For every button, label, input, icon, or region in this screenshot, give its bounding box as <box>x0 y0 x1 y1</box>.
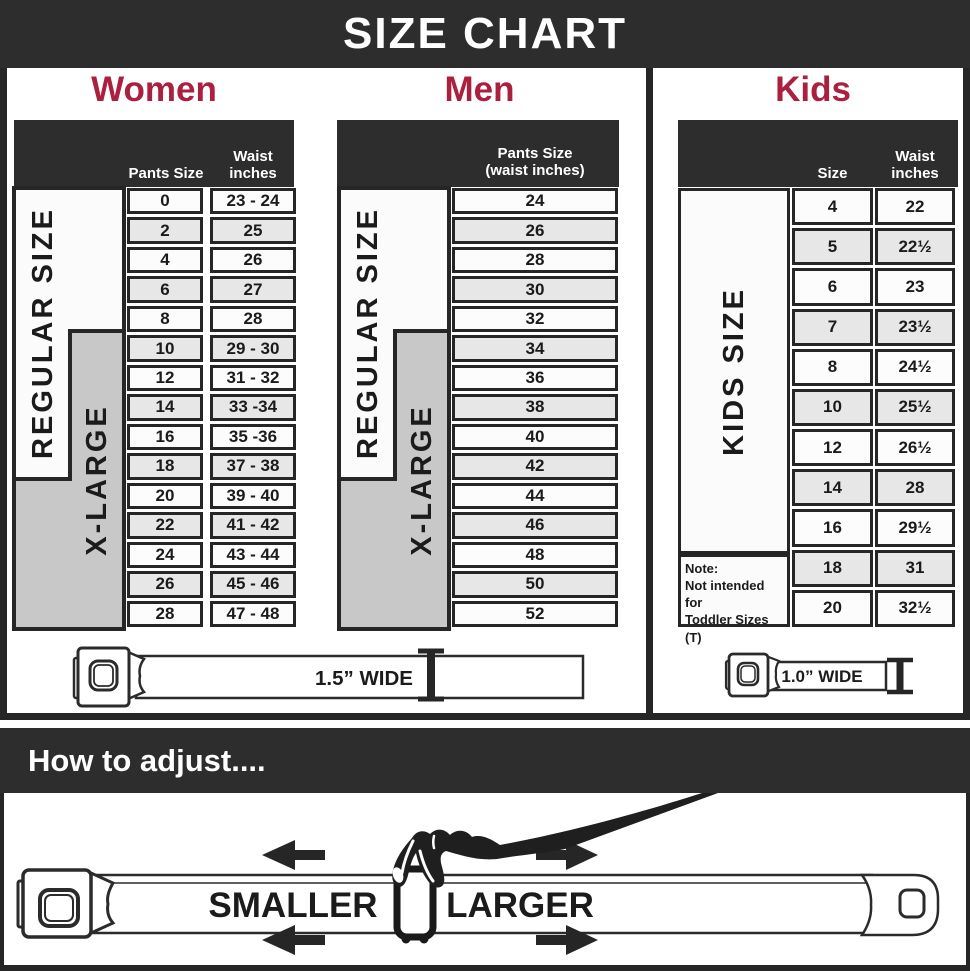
larger-label: LARGER <box>446 886 594 925</box>
how-to-adjust-heading: How to adjust.... <box>0 743 266 779</box>
pants-size-cell: 30 <box>452 276 618 302</box>
pants-size-cell: 50 <box>452 571 618 597</box>
waist-inches-cell: 26 <box>210 247 296 273</box>
kids-note: Note: Not intended for Toddler Sizes (T) <box>678 554 790 627</box>
note-line2: Not intended for <box>685 577 783 611</box>
table-row: 18 31 <box>792 550 955 587</box>
men-size-table: 242628303234363840424446485052 <box>452 188 618 627</box>
pants-size-cell: 48 <box>452 542 618 568</box>
pants-size-cell: 10 <box>127 335 203 361</box>
women-table-header: Pants Size Waist inches <box>14 120 294 187</box>
waist-header-line1: Waist <box>210 148 296 165</box>
kids-section-title: Kids <box>663 70 963 112</box>
table-row: 18 37 - 38 <box>127 453 296 479</box>
pants-size-cell: 28 <box>452 247 618 273</box>
size-chart-page: SIZE CHART Women Men Kids Pants Size Wai… <box>0 0 970 971</box>
belt-tip-graphic <box>862 875 938 935</box>
waist-inches-cell: 35 -36 <box>210 424 296 450</box>
kids-size-cell: 8 <box>792 349 873 386</box>
pants-size-cell: 40 <box>452 424 618 450</box>
table-row: 7 23½ <box>792 309 955 346</box>
table-row: 12 31 - 32 <box>127 365 296 391</box>
pants-size-cell: 28 <box>127 601 203 627</box>
men-table-header: Pants Size (waist inches) <box>337 120 619 187</box>
kids-table-header: Size Waist inches <box>678 120 958 187</box>
kids-belt-graphic: 1.0” WIDE <box>700 646 940 706</box>
waist-inches-cell: 28 <box>875 469 955 506</box>
pants-size-cell: 24 <box>452 188 618 214</box>
kids-size-cell: 14 <box>792 469 873 506</box>
table-row: 10 29 - 30 <box>127 335 296 361</box>
waist-inches-cell: 29 - 30 <box>210 335 296 361</box>
seatbelt-buckle-icon <box>726 654 779 696</box>
table-row: 16 29½ <box>792 509 955 546</box>
note-line3: Toddler Sizes (T) <box>685 611 783 645</box>
waist-inches-cell: 43 - 44 <box>210 542 296 568</box>
pants-size-cell: 44 <box>452 483 618 509</box>
pants-size-cell: 8 <box>127 306 203 332</box>
waist-inches-cell: 22 <box>875 188 955 225</box>
table-row: 0 23 - 24 <box>127 188 296 214</box>
kids-size-cell: 12 <box>792 429 873 466</box>
table-row: 10 25½ <box>792 389 955 426</box>
kids-size-column-header: Size <box>792 165 873 182</box>
waist-inches-cell: 25½ <box>875 389 955 426</box>
table-row: 6 27 <box>127 276 296 302</box>
note-line1: Note: <box>685 560 783 577</box>
table-row: 6 23 <box>792 268 955 305</box>
page-title: SIZE CHART <box>343 9 627 59</box>
pants-size-cell: 14 <box>127 394 203 420</box>
title-bar: SIZE CHART <box>0 0 970 68</box>
waist-inches-cell: 23 - 24 <box>210 188 296 214</box>
waist-inches-cell: 32½ <box>875 590 955 627</box>
pants-size-cell: 12 <box>127 365 203 391</box>
women-pants-size-column-header: Pants Size <box>126 165 206 182</box>
pants-size-cell: 0 <box>127 188 203 214</box>
table-row: 22 41 - 42 <box>127 512 296 538</box>
waist-header-line2: inches <box>210 165 296 182</box>
table-row: 4 22 <box>792 188 955 225</box>
men-regular-size-label: REGULAR SIZE <box>352 207 384 459</box>
smaller-label: SMALLER <box>208 886 377 925</box>
men-header-line2: (waist inches) <box>452 162 618 179</box>
kids-size-cell: 20 <box>792 590 873 627</box>
pants-size-cell: 38 <box>452 394 618 420</box>
waist-inches-cell: 24½ <box>875 349 955 386</box>
pants-size-cell: 34 <box>452 335 618 361</box>
pants-size-cell: 52 <box>452 601 618 627</box>
waist-inches-cell: 22½ <box>875 228 955 265</box>
kids-size-label: KIDS SIZE <box>718 287 751 456</box>
waist-header-line2: inches <box>875 165 955 182</box>
waist-inches-cell: 45 - 46 <box>210 571 296 597</box>
waist-inches-cell: 25 <box>210 217 296 243</box>
kids-size-table: 4 22 5 22½ 6 23 7 23½ 8 24½ 10 25½ 12 26… <box>792 188 955 627</box>
table-row: 12 26½ <box>792 429 955 466</box>
kids-belt-width-label: 1.0” WIDE <box>781 667 862 686</box>
hand-graphic <box>391 793 718 888</box>
table-row: 28 47 - 48 <box>127 601 296 627</box>
waist-inches-cell: 41 - 42 <box>210 512 296 538</box>
pants-size-cell: 4 <box>127 247 203 273</box>
pants-size-cell: 2 <box>127 217 203 243</box>
width-marker-icon <box>887 658 913 694</box>
kids-size-cell: 5 <box>792 228 873 265</box>
kids-size-cell: 6 <box>792 268 873 305</box>
pants-size-cell: 16 <box>127 424 203 450</box>
table-row: 5 22½ <box>792 228 955 265</box>
pants-size-cell: 24 <box>127 542 203 568</box>
men-header-line1: Pants Size <box>452 145 618 162</box>
how-to-adjust-bar: How to adjust.... <box>0 728 970 793</box>
kids-size-cell: 16 <box>792 509 873 546</box>
table-row: 8 28 <box>127 306 296 332</box>
table-row: 2 25 <box>127 217 296 243</box>
pants-size-cell: 26 <box>127 571 203 597</box>
pants-size-cell: 22 <box>127 512 203 538</box>
kids-size-cell: 18 <box>792 550 873 587</box>
waist-inches-cell: 26½ <box>875 429 955 466</box>
adjust-illustration: SMALLER LARGER <box>0 793 970 971</box>
adult-belt-graphic: 1.5” WIDE <box>58 642 598 714</box>
women-section-title: Women <box>14 70 294 112</box>
women-waist-column-header: Waist inches <box>210 148 296 183</box>
table-row: 24 43 - 44 <box>127 542 296 568</box>
waist-inches-cell: 28 <box>210 306 296 332</box>
table-row: 20 39 - 40 <box>127 483 296 509</box>
table-row: 20 32½ <box>792 590 955 627</box>
kids-size-label-box: KIDS SIZE <box>678 188 790 554</box>
men-x-large-label: X-LARGE <box>406 404 438 556</box>
pants-size-cell: 32 <box>452 306 618 332</box>
women-size-table: 0 23 - 24 2 25 4 26 6 27 8 28 10 29 - 30… <box>127 188 296 627</box>
kids-waist-column-header: Waist inches <box>875 148 955 183</box>
pants-size-cell: 46 <box>452 512 618 538</box>
men-size-range-labels: REGULAR SIZE X-LARGE <box>336 185 453 632</box>
adult-belt-width-label: 1.5” WIDE <box>315 667 413 690</box>
table-row: 14 33 -34 <box>127 394 296 420</box>
waist-inches-cell: 23½ <box>875 309 955 346</box>
men-section-title: Men <box>337 70 622 112</box>
waist-inches-cell: 39 - 40 <box>210 483 296 509</box>
pants-size-cell: 26 <box>452 217 618 243</box>
table-row: 14 28 <box>792 469 955 506</box>
seatbelt-buckle-icon <box>74 648 144 706</box>
waist-inches-cell: 23 <box>875 268 955 305</box>
women-size-range-labels: REGULAR SIZE X-LARGE <box>11 185 128 632</box>
pants-size-cell: 18 <box>127 453 203 479</box>
belt-tip-hole <box>900 890 924 917</box>
pants-size-cell: 20 <box>127 483 203 509</box>
pants-size-cell: 6 <box>127 276 203 302</box>
waist-inches-cell: 47 - 48 <box>210 601 296 627</box>
table-row: 4 26 <box>127 247 296 273</box>
women-x-large-label: X-LARGE <box>81 404 113 556</box>
waist-inches-cell: 37 - 38 <box>210 453 296 479</box>
arrow-left-icon <box>262 840 325 870</box>
table-row: 26 45 - 46 <box>127 571 296 597</box>
waist-inches-cell: 27 <box>210 276 296 302</box>
seatbelt-buckle-icon <box>18 870 113 937</box>
pants-size-cell: 36 <box>452 365 618 391</box>
kids-size-cell: 7 <box>792 309 873 346</box>
women-regular-size-label: REGULAR SIZE <box>27 207 59 459</box>
waist-inches-cell: 29½ <box>875 509 955 546</box>
table-row: 8 24½ <box>792 349 955 386</box>
waist-inches-cell: 33 -34 <box>210 394 296 420</box>
waist-header-line1: Waist <box>875 148 955 165</box>
men-pants-size-column-header: Pants Size (waist inches) <box>452 145 618 180</box>
waist-inches-cell: 31 - 32 <box>210 365 296 391</box>
kids-size-cell: 4 <box>792 188 873 225</box>
section-divider <box>646 68 653 713</box>
pants-size-cell: 42 <box>452 453 618 479</box>
table-row: 16 35 -36 <box>127 424 296 450</box>
waist-inches-cell: 31 <box>875 550 955 587</box>
kids-size-cell: 10 <box>792 389 873 426</box>
